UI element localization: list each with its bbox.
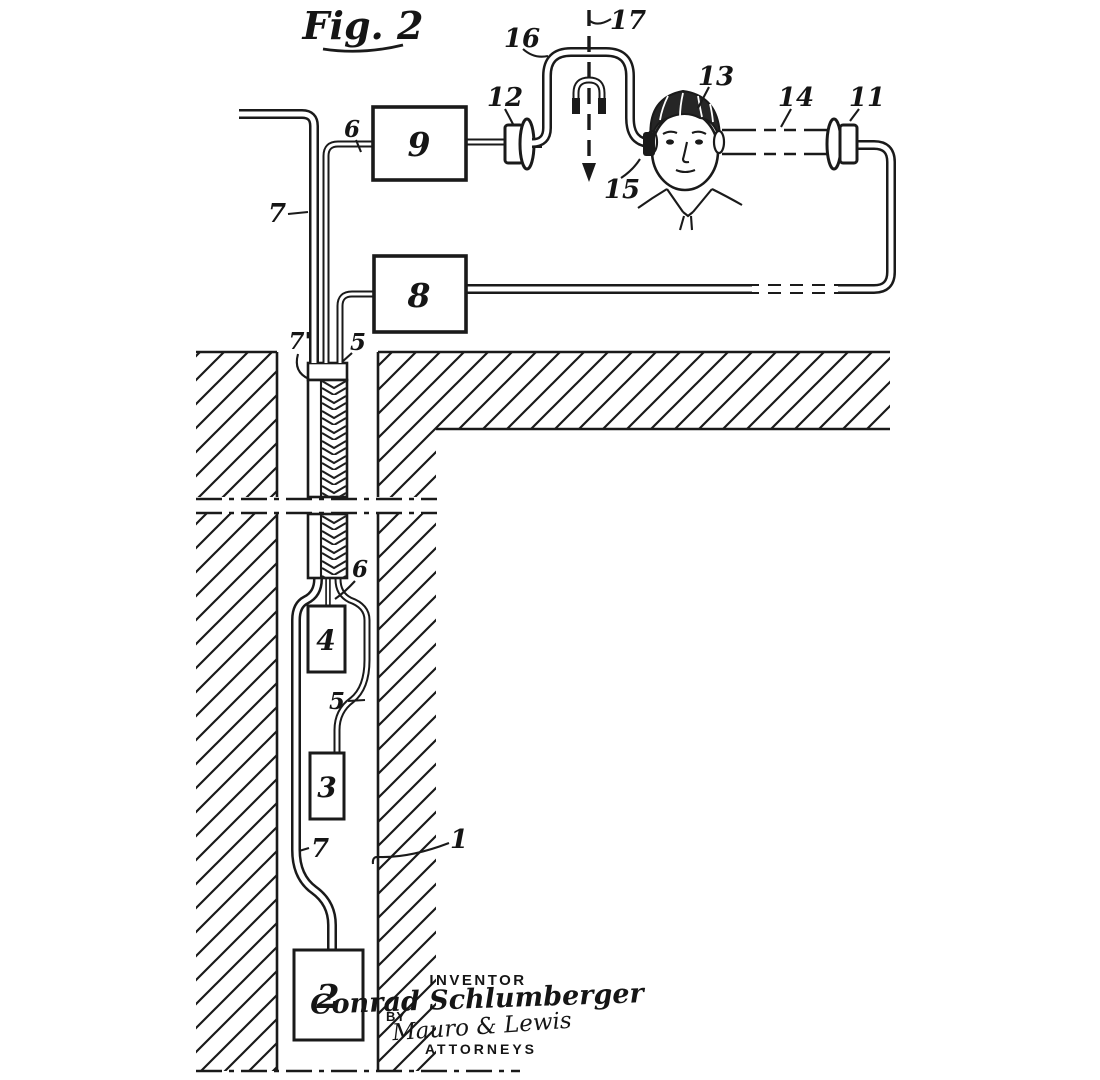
box-label-3: 3 [317,771,336,804]
ref-label-13: 13 [698,62,734,92]
box-label-4: 4 [316,624,335,657]
ear-tube-coupling [643,132,655,156]
ref-label-17: 17 [610,6,646,36]
ref-label-7-downhole: 7 [311,834,329,864]
ref-label-7-pipe: 7 [268,199,286,229]
wire-dashed-gap [752,280,834,298]
moving-measure-line-17 [582,10,596,182]
ground-hatch-right-column-upper [378,429,436,497]
shoulders [638,189,742,208]
ref-label-12: 12 [487,83,523,113]
ref-label-7-prime: 7' [288,328,311,355]
ground-hatch-left-upper [196,352,277,497]
box-label-9: 9 [408,125,431,164]
box-label-8: 8 [407,276,431,315]
left-eye [666,139,674,144]
right-ear [714,131,724,153]
ref-label-6-downhole: 6 [352,556,368,583]
ref-label-5-surface: 5 [350,329,366,356]
ref-label-5-downhole: 5 [329,688,345,715]
ref-label-1: 1 [450,825,468,855]
cable-head [308,363,347,380]
pipe-open-end [234,108,239,120]
figure-title: Fig. 2 [302,3,424,48]
ref-label-14: 14 [778,83,814,113]
ref-label-6-surface: 6 [344,116,360,143]
earpiece-11 [827,119,857,169]
down-arrowhead [582,163,596,182]
collar-and-tie [667,189,712,230]
armored-cable-upper [308,380,347,497]
right-eye [695,139,703,144]
ref-label-16: 16 [504,24,540,54]
patent-figure-page: Fig. 2 17 16 12 13 14 11 15 6 7 7' 5 6 5… [0,0,1100,1080]
ref-label-11: 11 [849,83,885,113]
leader-5-downhole [348,700,365,701]
acoustic-tube-loop-16 [532,52,651,143]
ground-hatch-surface-band [378,352,890,429]
leader-17 [590,19,611,24]
armored-cable-lower [308,514,347,578]
ground-hatch-left-lower [196,514,277,1071]
attorneys-caption: ATTORNEYS [425,1041,537,1057]
leader-7-pipe [288,212,308,214]
patent-drawing: Fig. 2 17 16 12 13 14 11 15 6 7 7' 5 6 5… [0,0,1100,1080]
ref-label-15: 15 [604,175,640,205]
